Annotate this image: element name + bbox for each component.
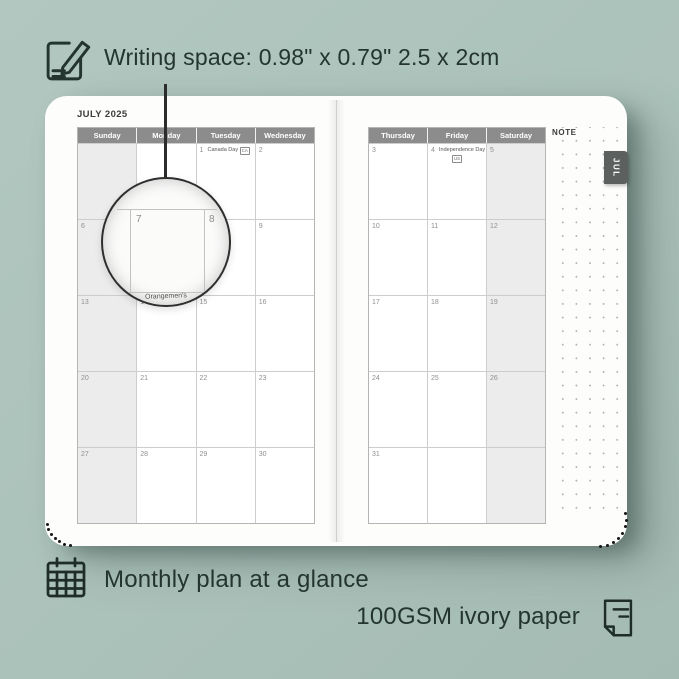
- calendar-day-cell: 9: [256, 220, 314, 295]
- calendar-day-cell: 16: [256, 296, 314, 371]
- holiday-label: Canada Day CA: [208, 147, 250, 155]
- magnifier-circle: 7 8 Orangemen's: [101, 177, 231, 307]
- day-number: 23: [259, 375, 267, 382]
- calendar-day-cell: 19: [487, 296, 545, 371]
- calendar-week-row: 101112: [369, 219, 545, 295]
- day-number: 18: [431, 299, 439, 306]
- calendar-day-cell: 4Independence Day US: [428, 144, 487, 219]
- day-number: 31: [372, 451, 380, 458]
- stitch-dots-left: [63, 543, 66, 546]
- magnified-grid-line: [204, 209, 205, 297]
- note-dot-grid: [551, 127, 625, 519]
- day-number: 21: [140, 375, 148, 382]
- magnified-grid-line: [130, 209, 131, 297]
- paper-page-icon: [595, 591, 641, 645]
- day-number: 3: [372, 147, 376, 154]
- calendar-day-cell: 31: [369, 448, 428, 523]
- day-number: 20: [81, 375, 89, 382]
- day-number: 11: [431, 223, 438, 230]
- weekday-header: Wednesday: [256, 128, 314, 143]
- day-number: 4: [431, 147, 435, 154]
- calendar-day-cell: 29: [197, 448, 256, 523]
- day-number: 30: [259, 451, 267, 458]
- calendar-day-cell: 23: [256, 372, 314, 447]
- stitch-dots-left: [50, 533, 53, 536]
- calendar-day-cell: 22: [197, 372, 256, 447]
- calendar-day-cell: 5: [487, 144, 545, 219]
- weekday-header: Sunday: [78, 128, 137, 143]
- calendar-day-cell: 25: [428, 372, 487, 447]
- stitch-dots-left: [46, 523, 49, 526]
- calendar-day-cell: 15: [197, 296, 256, 371]
- stitch-dots-left: [54, 537, 57, 540]
- monthly-plan-label: Monthly plan at a glance: [104, 566, 369, 594]
- day-number: 13: [81, 299, 89, 306]
- holiday-label: Independence Day: [439, 147, 485, 153]
- calendar-week-row: 242526: [369, 371, 545, 447]
- month-tab-label: JUL: [612, 158, 621, 178]
- pointer-line: [164, 84, 167, 180]
- calendar-week-row: 27282930: [78, 447, 314, 523]
- calendar-week-row: 171819: [369, 295, 545, 371]
- day-number: 25: [431, 375, 439, 382]
- calendar-day-cell: 2: [256, 144, 314, 219]
- stitch-dots-right: [599, 545, 602, 548]
- day-number: 27: [81, 451, 89, 458]
- calendar-week-row: 31: [369, 447, 545, 523]
- day-number: 15: [200, 299, 208, 306]
- weekday-header: Tuesday: [197, 128, 256, 143]
- day-number: 2: [259, 147, 263, 154]
- calendar-day-cell: 3: [369, 144, 428, 219]
- magnified-day-8: 8: [209, 214, 215, 225]
- day-number: 1: [200, 147, 204, 154]
- calendar-day-cell: 30: [256, 448, 314, 523]
- stitch-dots-left: [69, 544, 72, 547]
- calendar-day-cell: 27: [78, 448, 137, 523]
- stitch-dots-right: [606, 544, 609, 547]
- weekday-header: Saturday: [487, 128, 545, 143]
- day-number: 9: [259, 223, 263, 230]
- day-number: 22: [200, 375, 208, 382]
- calendar-week-row: 34Independence Day US5: [369, 143, 545, 219]
- day-number: 5: [490, 147, 494, 154]
- day-number: 16: [259, 299, 267, 306]
- calendar-day-cell: 24: [369, 372, 428, 447]
- country-badge: US: [452, 155, 462, 163]
- spine: [336, 100, 337, 542]
- day-number: 6: [81, 223, 85, 230]
- paper-quality-label: 100GSM ivory paper: [356, 603, 580, 631]
- calendar-day-cell: 26: [487, 372, 545, 447]
- magnified-grid-line: [117, 209, 217, 210]
- calendar-day-cell: 28: [137, 448, 196, 523]
- calendar-day-cell: 10: [369, 220, 428, 295]
- calendar-day-cell: [487, 448, 545, 523]
- calendar-day-cell: 12: [487, 220, 545, 295]
- day-number: 26: [490, 375, 498, 382]
- stitch-dots-right: [625, 519, 628, 522]
- notepad-pencil-icon: [40, 33, 92, 89]
- calendar-day-cell: 21: [137, 372, 196, 447]
- calendar-day-cell: 14: [137, 296, 196, 371]
- country-badge-row: US: [428, 155, 486, 173]
- calendar-grid-icon: [42, 554, 90, 602]
- magnified-day-7: 7: [136, 214, 142, 225]
- product-image: Writing space: 0.98" x 0.79" 2.5 x 2cm J…: [0, 0, 679, 679]
- calendar-week-row: 20212223: [78, 371, 314, 447]
- day-number: 28: [140, 451, 148, 458]
- calendar-day-cell: 17: [369, 296, 428, 371]
- weekday-header-row: ThursdayFridaySaturday: [369, 128, 545, 143]
- weekday-header-row: SundayMondayTuesdayWednesday: [78, 128, 314, 143]
- calendar-right-grid: ThursdayFridaySaturday34Independence Day…: [368, 127, 546, 524]
- day-number: 12: [490, 223, 498, 230]
- weekday-header: Monday: [137, 128, 196, 143]
- month-tab: JUL: [604, 151, 628, 184]
- calendar-day-cell: 13: [78, 296, 137, 371]
- day-number: 10: [372, 223, 380, 230]
- day-number: 19: [490, 299, 498, 306]
- calendar-week-row: 13141516: [78, 295, 314, 371]
- note-label: NOTE: [552, 128, 577, 137]
- country-badge: CA: [240, 147, 250, 155]
- calendar-day-cell: [428, 448, 487, 523]
- day-number: 17: [372, 299, 380, 306]
- calendar-day-cell: 18: [428, 296, 487, 371]
- day-number: 29: [200, 451, 208, 458]
- writing-space-label: Writing space: 0.98" x 0.79" 2.5 x 2cm: [104, 44, 500, 71]
- weekday-header: Thursday: [369, 128, 428, 143]
- day-number: 24: [372, 375, 380, 382]
- calendar-day-cell: 11: [428, 220, 487, 295]
- month-title: JULY 2025: [77, 109, 128, 120]
- calendar-day-cell: 20: [78, 372, 137, 447]
- weekday-header: Friday: [428, 128, 487, 143]
